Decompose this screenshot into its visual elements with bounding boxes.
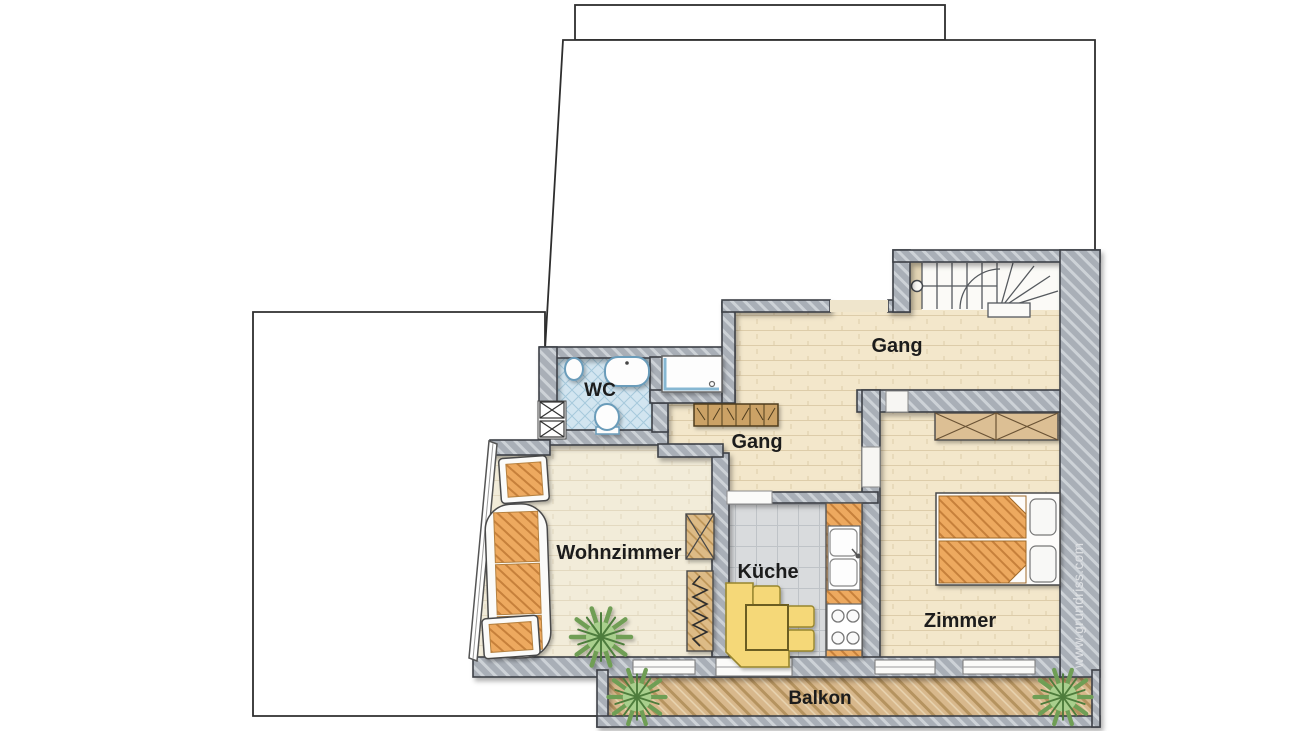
floor-plan-canvas: WC Gang Gang Wohnzimmer Küche Zimmer Bal… [0,0,1300,731]
stove [827,604,862,650]
floor-plan-svg: WC Gang Gang Wohnzimmer Küche Zimmer Bal… [0,0,1300,731]
room-label-gang-upper: Gang [871,335,922,357]
door-kueche [727,491,772,504]
wall-gang-step [652,403,668,432]
room-label-wohnzimmer: Wohnzimmer [556,542,681,564]
room-label-wc: WC [584,380,616,401]
watermark-text: www.grundriss.com [1071,542,1086,669]
wall-gang-left [722,302,735,403]
outline-top-box [575,5,945,40]
room-label-kueche: Küche [737,561,798,583]
pillow [1030,546,1056,582]
dining-table [746,605,788,650]
door-zimmer-gang [886,391,908,412]
wall-balkon-bottom [597,716,1100,727]
pillow [1030,499,1056,535]
opening-gang-stairs [830,300,888,312]
dining-chair [753,586,780,606]
radiator-shelf [687,571,713,651]
wall-wohnzimmer-top-step [658,444,723,457]
wall-gang-top [722,300,830,312]
wall-balkon-right [1092,670,1100,727]
toilet [595,404,619,430]
double-sink [828,526,861,590]
room-label-balkon: Balkon [788,688,851,709]
wardrobe [935,413,1058,440]
gang-connector-floor [735,390,862,403]
side-table [686,514,714,559]
armchair [498,455,549,503]
stair-post-symbol [912,281,923,292]
room-label-zimmer: Zimmer [924,610,996,632]
door-zimmer-lower-gang [862,447,880,487]
side-chair [482,615,541,659]
room-label-gang-lower: Gang [731,431,782,453]
urinal [565,358,583,380]
door-wc-frame [538,401,566,439]
dining-chair [787,630,814,651]
wall-wohnzimmer-topleft [490,440,550,455]
zimmer-furniture [935,413,1060,585]
wall-zimmer-left [862,390,880,677]
gang-wardrobe [694,404,778,426]
dining-chair [787,606,814,627]
double-bed [936,493,1060,585]
basin-faucet [625,361,629,365]
